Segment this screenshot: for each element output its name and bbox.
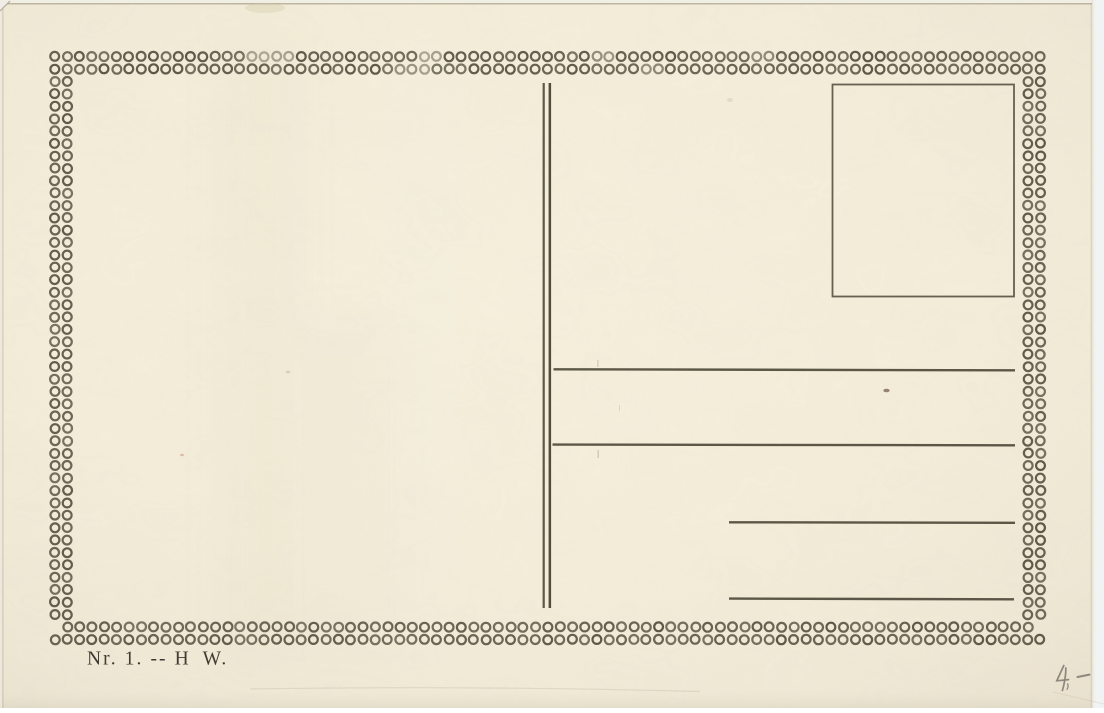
svg-text:Nr. 1. -- H W.: Nr. 1. -- H W.: [87, 649, 228, 670]
